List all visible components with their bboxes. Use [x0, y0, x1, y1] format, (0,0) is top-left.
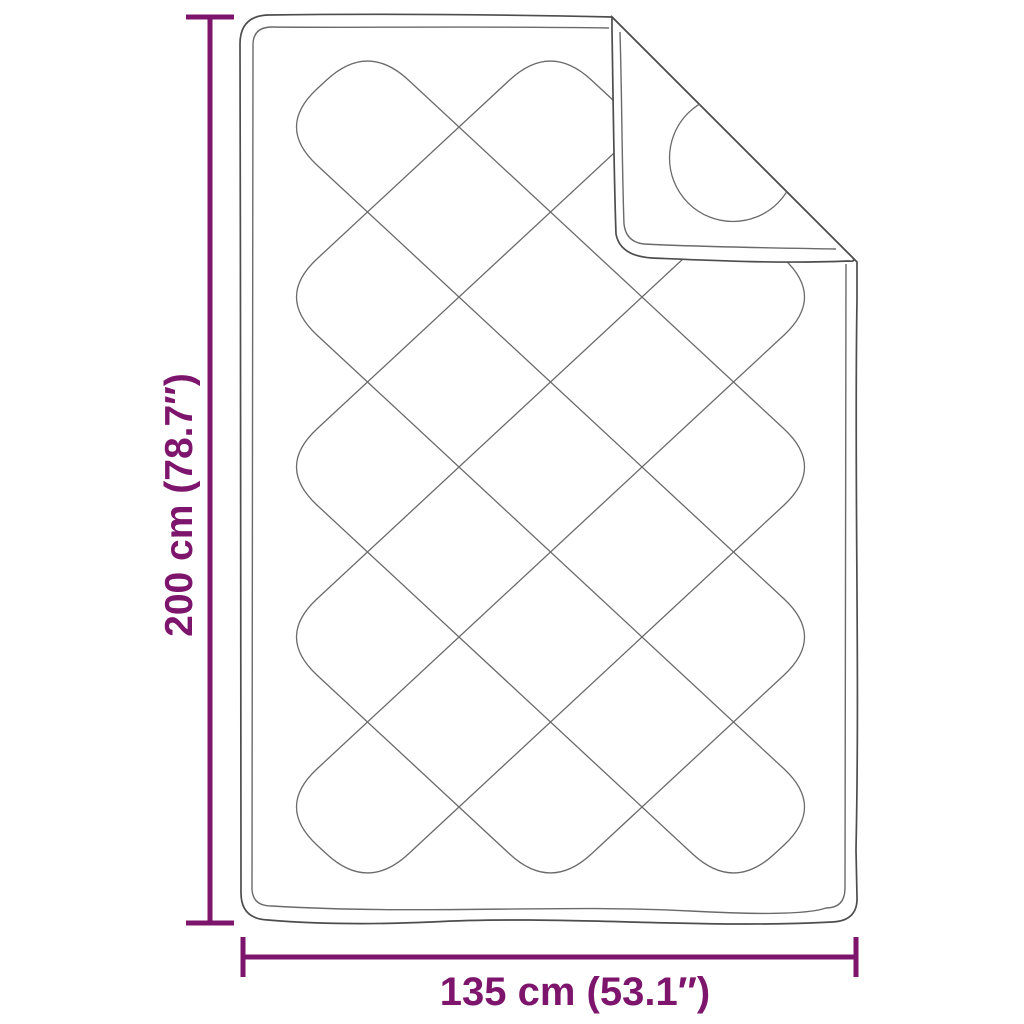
folded-corner-flap [612, 17, 854, 262]
blanket-outline [240, 14, 857, 924]
product-dimension-diagram: 200 cm (78.7″) 135 cm (53.1″) [0, 0, 1024, 1024]
height-dimension-label: 200 cm (78.7″) [158, 373, 201, 637]
blanket-diagram-svg: 200 cm (78.7″) 135 cm (53.1″) [0, 0, 1024, 1024]
width-dimension-label: 135 cm (53.1″) [440, 970, 710, 1014]
blanket-illustration [240, 14, 857, 924]
